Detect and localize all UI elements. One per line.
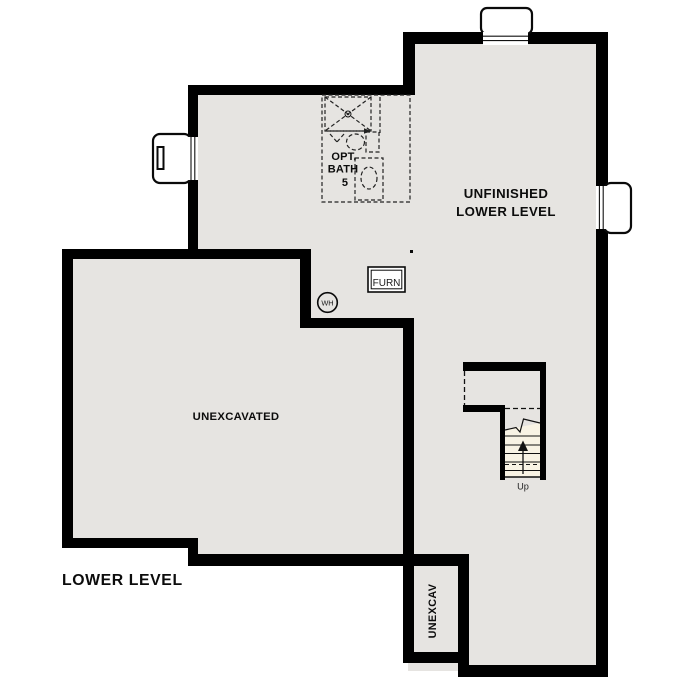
page-title: LOWER LEVEL bbox=[62, 572, 183, 589]
floor-drain-dot bbox=[410, 250, 413, 253]
window-right bbox=[596, 183, 631, 233]
wall-unexcav-right bbox=[458, 554, 469, 677]
window-crank-symbol bbox=[158, 147, 164, 169]
window-left bbox=[153, 134, 198, 183]
wall-step-vertical bbox=[300, 249, 311, 328]
floor-plan-drawing: FURN WH UNFINISHED LOWER LEVEL UNEXCAVAT… bbox=[0, 0, 687, 687]
water-heater-symbol: WH bbox=[318, 293, 338, 313]
window-opening-right bbox=[596, 186, 608, 229]
unfinished-lower-level-label-line1: UNFINISHED bbox=[464, 186, 549, 201]
wall-room-bottom bbox=[62, 538, 198, 548]
wall-stair-inner-vertical bbox=[500, 405, 505, 480]
window-well-top bbox=[481, 8, 532, 34]
wall-middle-vertical bbox=[403, 318, 414, 663]
wall-top-middle bbox=[188, 85, 415, 95]
opt-bath-label-line3: 5 bbox=[342, 177, 348, 189]
wall-room-left bbox=[62, 249, 73, 548]
unfinished-lower-level-label-line2: LOWER LEVEL bbox=[456, 204, 556, 219]
window-top bbox=[481, 8, 532, 45]
floor-main-right bbox=[408, 36, 602, 671]
opt-bath-label-line1: OPT. bbox=[331, 151, 356, 163]
water-heater-label: WH bbox=[321, 299, 333, 308]
window-opening-top bbox=[483, 32, 528, 45]
floor-plan-page: FURN WH UNFINISHED LOWER LEVEL UNEXCAVAT… bbox=[0, 0, 687, 687]
wall-stair-inner-horizontal bbox=[463, 405, 505, 412]
unexcavated-label: UNEXCAVATED bbox=[193, 411, 280, 423]
wall-room-top bbox=[62, 249, 311, 259]
wall-nook-horizontal bbox=[300, 318, 414, 328]
furnace-symbol: FURN bbox=[368, 267, 405, 292]
window-opening-left bbox=[188, 137, 198, 180]
unexcav-small-label: UNEXCAV bbox=[427, 583, 439, 638]
stairs-up-label: Up bbox=[517, 482, 529, 492]
wall-right bbox=[596, 32, 608, 677]
wall-bottom-right bbox=[458, 665, 608, 677]
window-well-right bbox=[604, 183, 631, 233]
wall-stair-top bbox=[463, 362, 546, 371]
floor-unexcavated-room bbox=[67, 254, 198, 543]
furnace-label: FURN bbox=[373, 278, 401, 289]
wall-stair-right bbox=[540, 362, 546, 480]
opt-bath-label-line2: BATH bbox=[328, 164, 359, 176]
wall-lower-horizontal bbox=[188, 554, 469, 566]
